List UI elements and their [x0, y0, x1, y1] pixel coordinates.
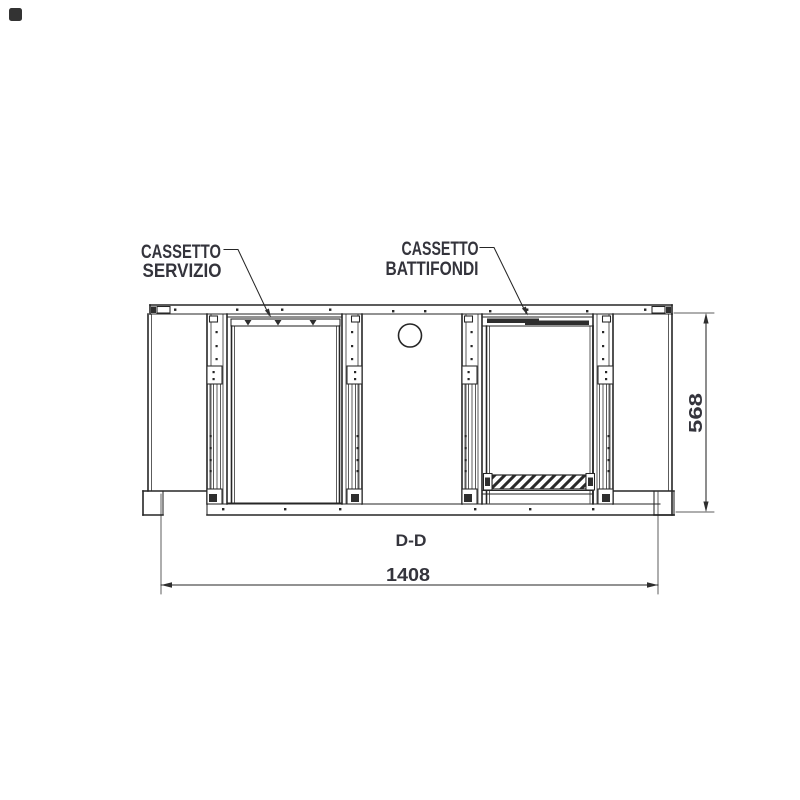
drawer-post [207, 314, 227, 504]
drawer-post [593, 314, 613, 504]
fastener-dots [174, 309, 646, 313]
callout-knockbox-drawer: CASSETTO BATTIFONDI [386, 239, 529, 316]
dimension-width-value: 1408 [386, 565, 430, 585]
drawer-post [342, 314, 362, 504]
callout-service-line1: CASSETTO [141, 242, 221, 263]
bottom-band [207, 504, 674, 515]
section-label: D-D [396, 531, 427, 550]
knock-bar-hatched [482, 474, 595, 495]
counter-top-band [150, 305, 672, 314]
corner-bracket-icon [666, 307, 671, 314]
corner-bracket-icon [652, 307, 665, 314]
corner-bracket-icon [151, 307, 156, 314]
dimension-height-value: 568 [686, 393, 706, 433]
drawer-post [462, 314, 482, 504]
callout-service-line2: SERVIZIO [143, 261, 222, 282]
section-drawing-svg: CASSETTO SERVIZIO CASSETTO BATTIFONDI 56… [0, 0, 800, 800]
hole-circle [399, 324, 422, 347]
leader-line [480, 248, 526, 314]
right-foot [654, 491, 674, 515]
left-side-panel [143, 314, 207, 491]
callout-knockbox-line2: BATTIFONDI [386, 259, 479, 280]
right-side-panel [613, 314, 674, 515]
dim-arrow-icon [703, 313, 708, 324]
callout-knockbox-line1: CASSETTO [402, 239, 479, 260]
service-drawer [207, 314, 362, 504]
fastener-dots [222, 508, 594, 510]
technical-drawing-page: CASSETTO SERVIZIO CASSETTO BATTIFONDI 56… [0, 0, 800, 800]
dim-arrow-icon [161, 582, 172, 587]
drawer-box [227, 317, 342, 503]
corner-bracket-icon [157, 307, 170, 314]
dim-arrow-icon [647, 582, 658, 587]
left-foot [143, 491, 163, 515]
leader-arrow-icon [265, 309, 271, 318]
knockbox-drawer [462, 314, 613, 504]
dimension-height-568: 568 [674, 313, 714, 512]
dim-arrow-icon [703, 502, 708, 513]
